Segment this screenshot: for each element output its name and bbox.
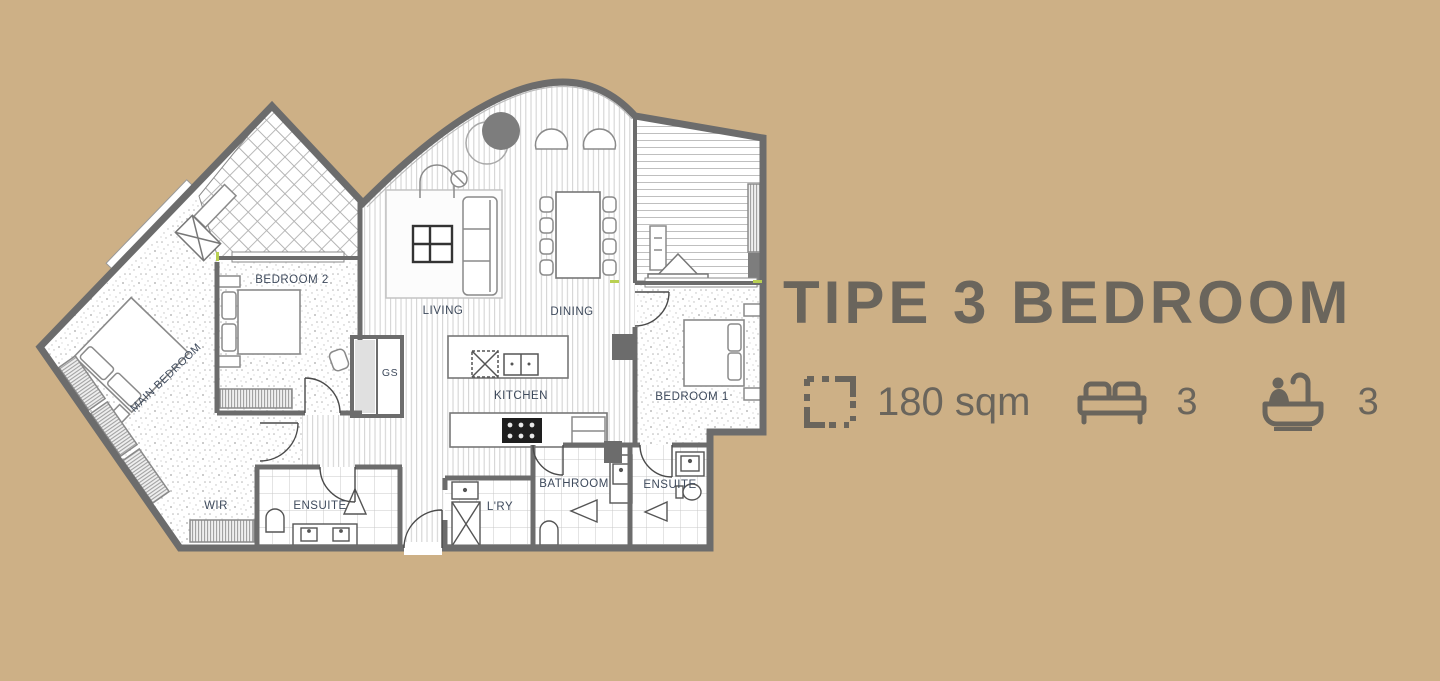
room-label-kitchen: KITCHEN xyxy=(494,390,548,402)
area-outline-icon xyxy=(803,375,857,429)
room-label-bedroom-1: BEDROOM 1 xyxy=(655,391,729,403)
bed-icon xyxy=(1076,376,1148,428)
page-title: TIPE 3 BEDROOM xyxy=(783,268,1352,337)
bathrooms-count: 3 xyxy=(1358,372,1379,432)
bath-icon xyxy=(1260,371,1326,433)
bedrooms-count: 3 xyxy=(1176,372,1197,432)
area-value: 180 sqm xyxy=(877,372,1030,432)
stats-row: 180 sqm 3 3 xyxy=(803,372,1379,432)
room-label-dining: DINING xyxy=(550,306,593,318)
room-label-laundry: L'RY xyxy=(487,501,513,513)
room-label-bedroom-2: BEDROOM 2 xyxy=(255,274,329,286)
room-label-ensuite-left: ENSUITE xyxy=(293,500,346,512)
room-label-living: LIVING xyxy=(423,305,464,317)
room-label-bathroom: BATHROOM xyxy=(539,478,609,490)
page: { "colors": { "background": "#cdb086", "… xyxy=(0,0,1440,681)
floor-plan: MAIN BEDROOM BEDROOM 2 LIVING DINING KIT… xyxy=(0,0,1440,681)
room-label-ensuite-right: ENSUITE xyxy=(643,479,696,491)
room-label-gs: GS xyxy=(382,367,398,379)
room-label-wir: WIR xyxy=(204,500,228,512)
